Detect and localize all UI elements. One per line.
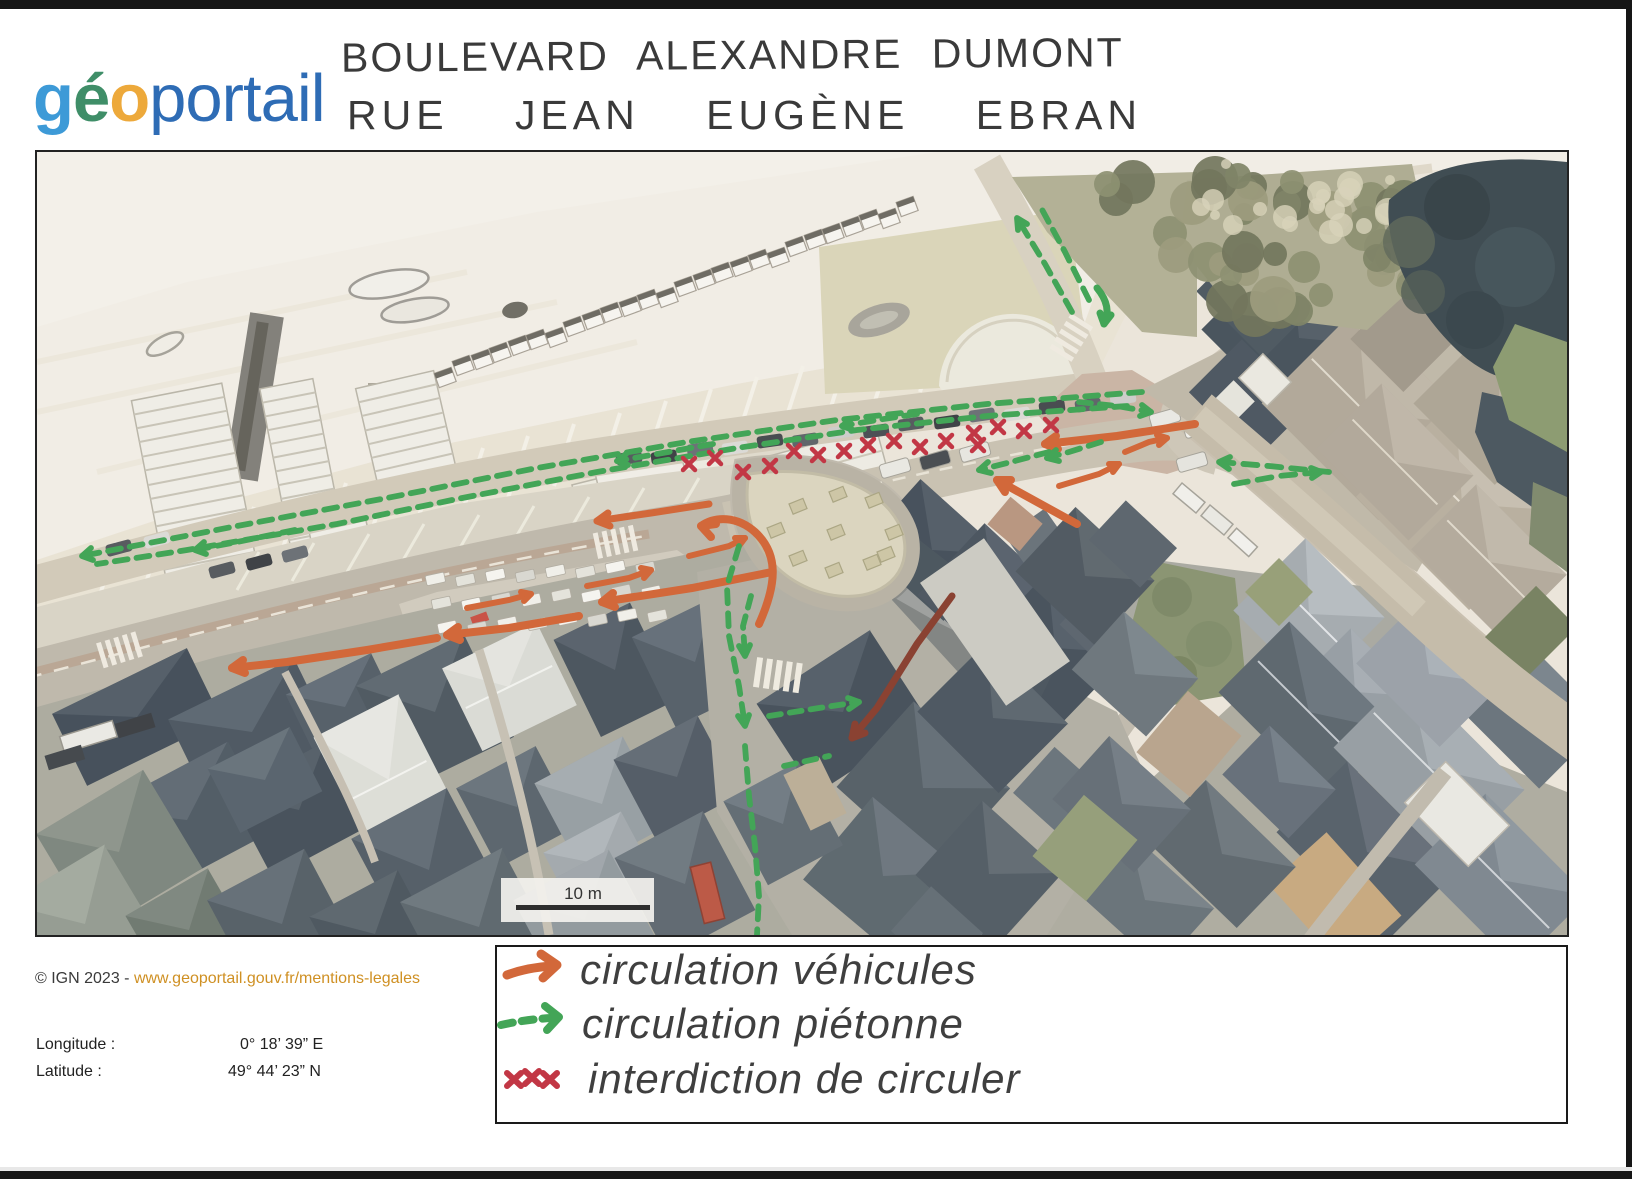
svg-text:10 m: 10 m [564,884,602,903]
